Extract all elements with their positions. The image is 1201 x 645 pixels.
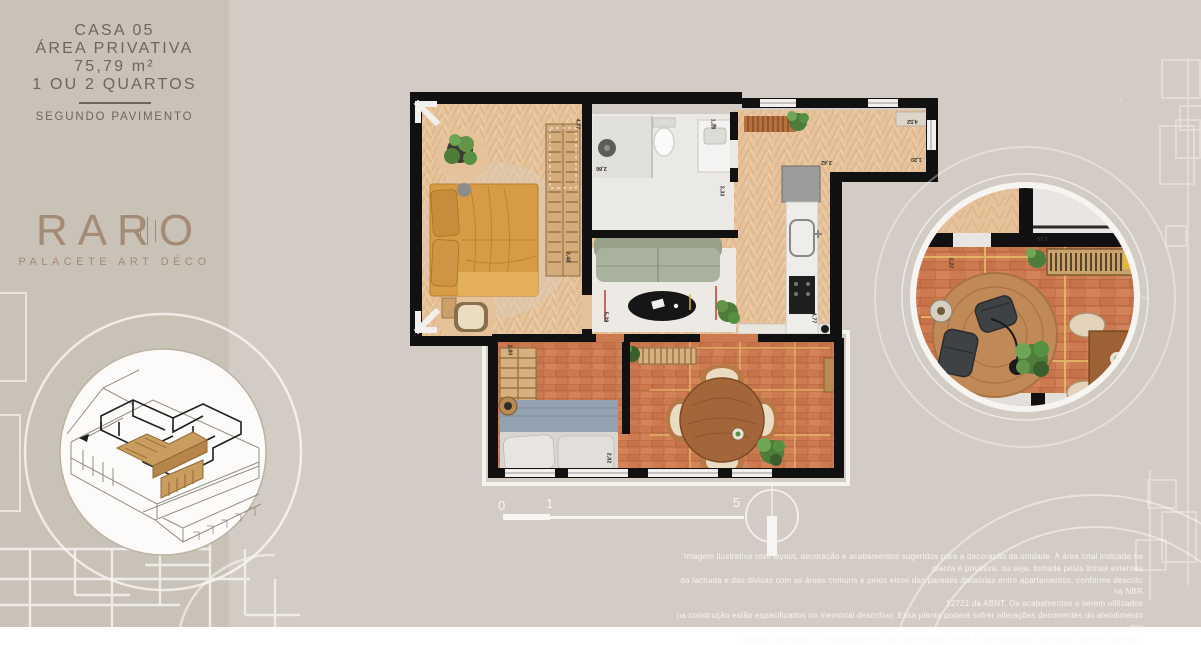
dimension-label: 2,86	[596, 165, 607, 171]
bed-1	[430, 184, 538, 296]
north-indicator-icon	[738, 478, 808, 560]
disclaimer-line: planta é privativa, ou seja, tomada pela…	[673, 563, 1143, 575]
fridge-icon	[782, 166, 820, 202]
dimension-label: 4,52	[907, 118, 918, 124]
dimension-label: 1,28	[709, 119, 715, 130]
detail-wood-floor	[915, 187, 1027, 237]
area-value: 75,79 m²	[0, 58, 229, 76]
dimension-label: 2,42	[821, 159, 832, 165]
unit-info-block: CASA 05 ÁREA PRIVATIVA 75,79 m² 1 OU 2 Q…	[0, 22, 229, 123]
dimension-label: 3,48	[564, 252, 570, 263]
disclaimer-line: da fachada e das divisas com as áreas co…	[673, 575, 1143, 599]
bench	[442, 298, 456, 318]
plant-icon	[1015, 341, 1049, 377]
detail-circle	[845, 117, 1201, 477]
kitchen	[782, 166, 822, 334]
sofa	[594, 236, 722, 282]
brochure-page: CASA 05 ÁREA PRIVATIVA 75,79 m² 1 OU 2 Q…	[0, 0, 1201, 627]
disclaimer-line: posturas municipais, concessionárias e d…	[673, 634, 1143, 645]
area-label: ÁREA PRIVATIVA	[0, 40, 229, 58]
scale-label-0: 0	[498, 498, 506, 513]
brand-logo: RARO PALACETE ART DÉCO	[0, 208, 229, 268]
dimension-label: 2,80	[506, 345, 512, 356]
logo-deco-o-icon	[140, 220, 156, 242]
floor-label: SEGUNDO PAVIMENTO	[0, 111, 229, 123]
coffee-table-icon	[628, 291, 696, 321]
dimension-label: 1,20	[911, 156, 922, 162]
brand-tagline: PALACETE ART DÉCO	[0, 256, 229, 268]
dimension-label: 4,77	[810, 313, 816, 324]
dimension-label: 5,39	[602, 312, 608, 323]
divider-rule	[79, 102, 151, 104]
isometric-circle	[13, 302, 313, 602]
disclaimer-line: Imagem ilustrativa com layout, decoração…	[673, 551, 1143, 563]
brand-name: RARO	[0, 208, 229, 254]
dimension-label: 5,19	[1037, 235, 1048, 241]
disclaimer-text: Imagem ilustrativa com layout, decoração…	[673, 551, 1143, 645]
piano-sideboard	[1047, 249, 1135, 275]
disclaimer-line: 12721 da ABNT. Os acabamentos a serem ut…	[673, 598, 1143, 610]
toilet-icon	[653, 118, 675, 156]
bed-2	[500, 400, 618, 472]
dimension-label: 4,77	[574, 119, 580, 130]
cooktop-icon	[789, 276, 815, 314]
disclaimer-line: na construção estão especificados no mem…	[673, 610, 1143, 634]
stool	[457, 183, 471, 197]
wardrobe	[546, 124, 580, 276]
rooms-label: 1 OU 2 QUARTOS	[0, 76, 229, 94]
scale-bar-segment	[503, 514, 550, 520]
scale-label-1: 1	[546, 496, 554, 511]
unit-title: CASA 05	[0, 22, 229, 40]
dimension-label: 2,27	[947, 258, 953, 269]
armchair-1	[454, 302, 488, 332]
dimension-label: 3,33	[718, 186, 724, 197]
dimension-label: 2,82	[605, 453, 611, 464]
